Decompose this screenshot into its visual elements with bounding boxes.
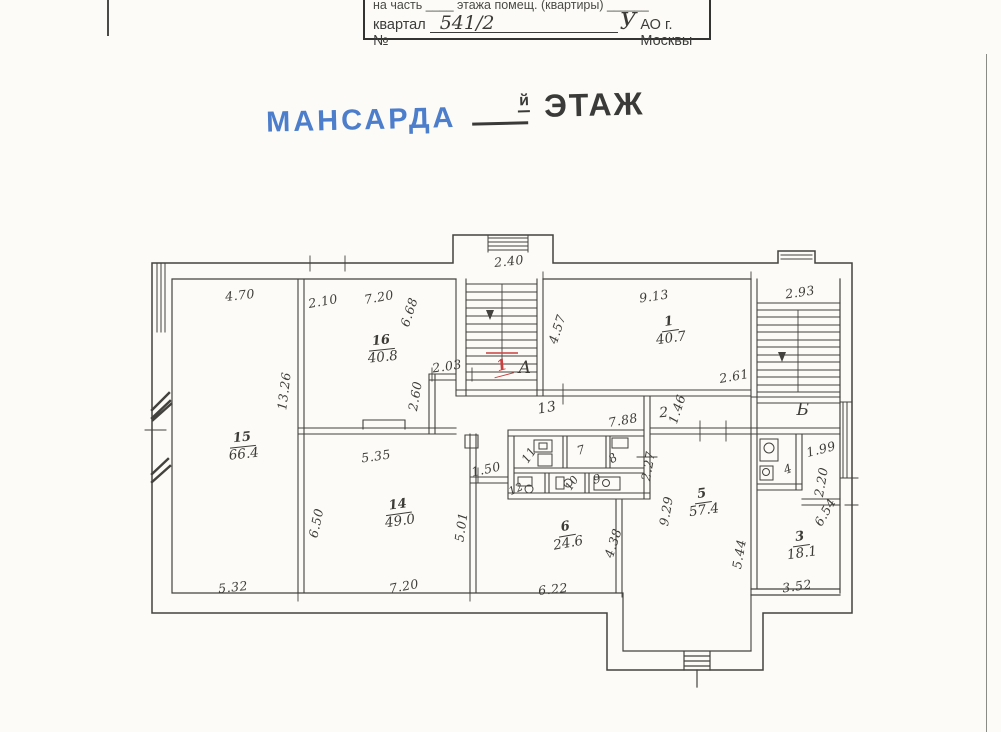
dimension-label: 2.40	[493, 252, 524, 270]
scanned-floor-plan-page: на часть ____ этажа помещ. (квартиры) __…	[0, 0, 1001, 732]
sink-bowl	[603, 480, 610, 487]
room-area: 66.4	[228, 446, 260, 465]
room-label: 15 66.4	[226, 430, 259, 464]
dimension-label: 4.70	[224, 286, 255, 304]
stair-b-arrow	[778, 352, 786, 362]
roof-ladder-top	[488, 236, 812, 259]
dimension-label: 5.32	[217, 578, 248, 596]
room-area: 40.8	[367, 349, 399, 368]
plan-text-label: 13	[536, 398, 557, 417]
sink-bowl	[763, 469, 770, 476]
room-label: 16 40.8	[365, 333, 398, 367]
room-label: 5 57.4	[686, 485, 720, 520]
stair-b-treads	[757, 310, 840, 392]
toilet-bowl	[764, 443, 774, 453]
dimension-label: 6.22	[537, 580, 568, 598]
room-label: 6 24.6	[549, 518, 584, 554]
plan-text-label: А	[518, 358, 531, 378]
left-wall-lines	[157, 263, 165, 332]
room-label: 3 18.1	[784, 528, 818, 563]
stair-a-arrow	[486, 310, 494, 320]
left-wall-hatch	[152, 393, 171, 482]
plan-text-label: Б	[797, 400, 810, 420]
window-right-wall	[840, 402, 852, 478]
room-label: 1 40.7	[653, 313, 687, 348]
room-label: 14 49.0	[382, 496, 416, 531]
